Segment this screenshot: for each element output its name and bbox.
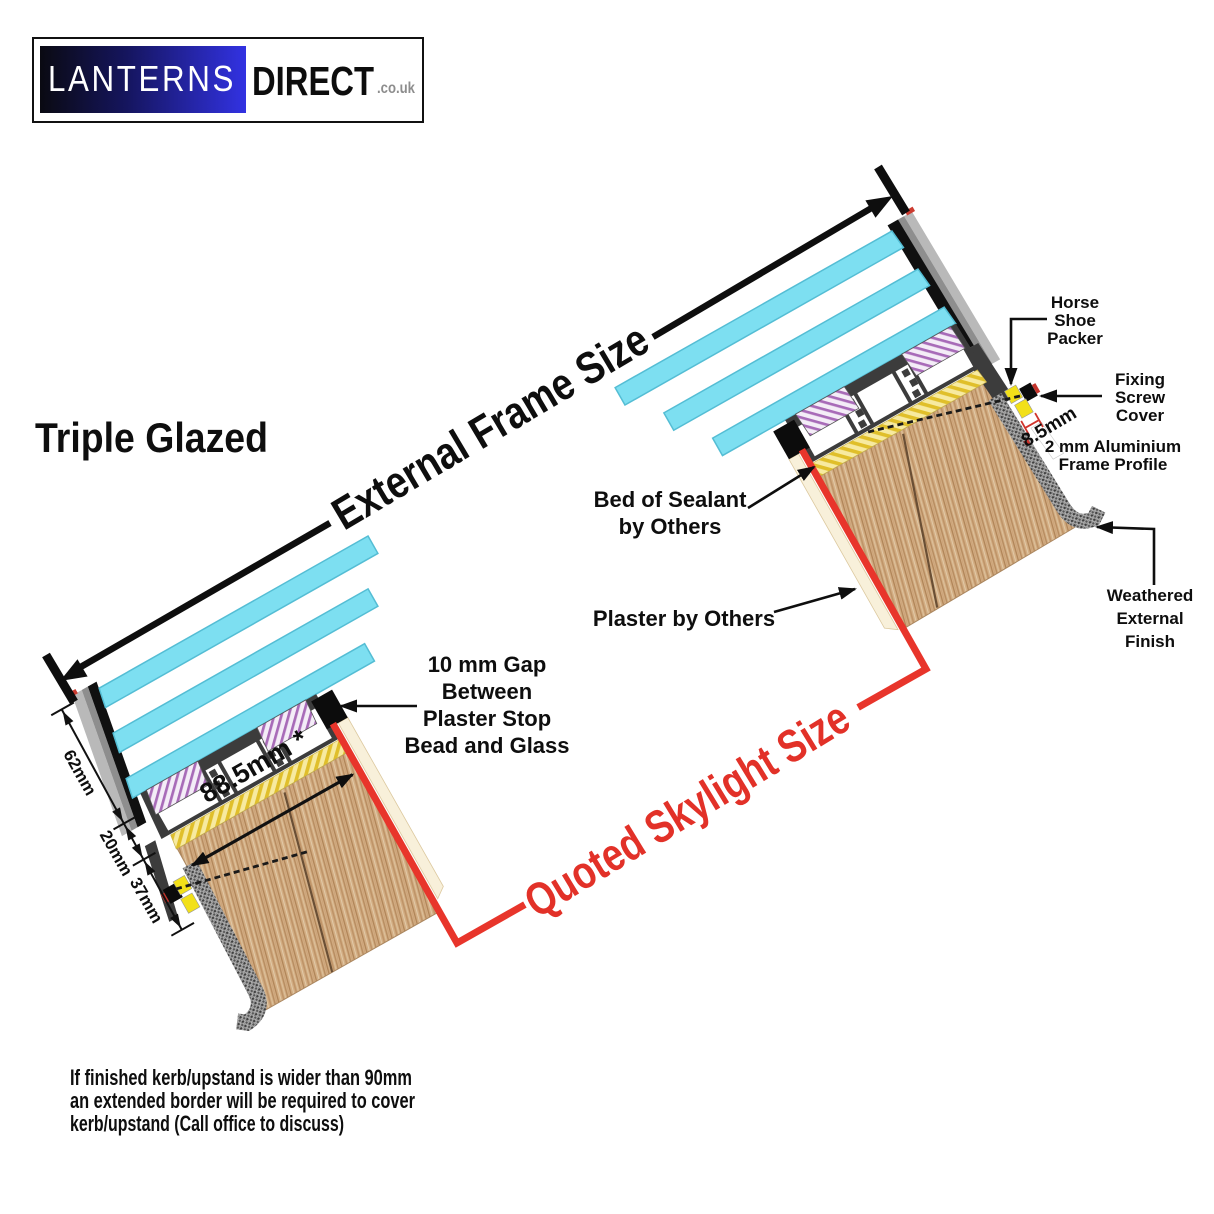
svg-text:Screw: Screw	[1115, 388, 1166, 407]
svg-text:Shoe: Shoe	[1054, 311, 1096, 330]
svg-text:Horse: Horse	[1051, 293, 1099, 312]
svg-text:Fixing: Fixing	[1115, 370, 1165, 389]
svg-text:LANTERNS: LANTERNS	[48, 58, 236, 99]
svg-text:Packer: Packer	[1047, 329, 1103, 348]
svg-text:Finish: Finish	[1125, 632, 1175, 651]
svg-text:kerb/upstand (Call office to d: kerb/upstand (Call office to discuss)	[70, 1111, 344, 1136]
svg-text:Plaster Stop: Plaster Stop	[423, 706, 551, 731]
svg-text:Weathered: Weathered	[1107, 586, 1194, 605]
svg-text:Between: Between	[442, 679, 532, 704]
svg-text:Bed of Sealant: Bed of Sealant	[594, 487, 747, 512]
svg-text:10 mm Gap: 10 mm Gap	[428, 652, 547, 677]
svg-text:Frame Profile: Frame Profile	[1059, 455, 1168, 474]
svg-text:Plaster by Others: Plaster by Others	[593, 606, 775, 631]
svg-text:.co.uk: .co.uk	[377, 80, 415, 97]
svg-text:Bead and Glass: Bead and Glass	[404, 733, 569, 758]
svg-text:2 mm Aluminium: 2 mm Aluminium	[1045, 437, 1181, 456]
svg-text:DIRECT: DIRECT	[252, 58, 374, 104]
svg-text:If finished kerb/upstand is wi: If finished kerb/upstand is wider than 9…	[70, 1065, 412, 1090]
svg-text:an extended border will be req: an extended border will be required to c…	[70, 1088, 415, 1113]
svg-text:Cover: Cover	[1116, 406, 1165, 425]
svg-text:by Others: by Others	[619, 514, 722, 539]
svg-text:Triple Glazed: Triple Glazed	[35, 414, 268, 461]
svg-text:External: External	[1116, 609, 1183, 628]
